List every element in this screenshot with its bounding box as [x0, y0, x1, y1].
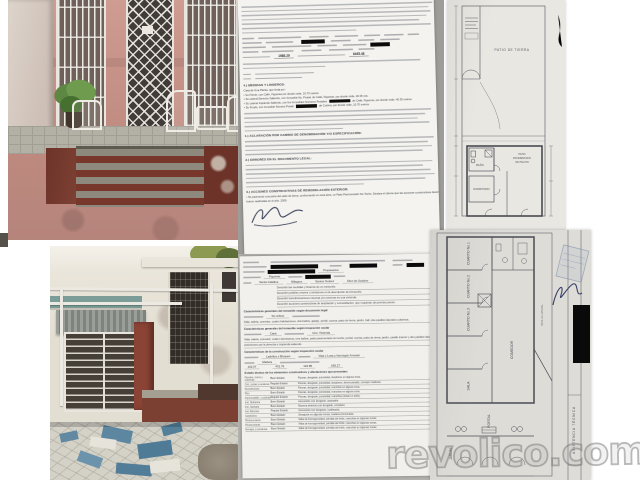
label-patio-pav-1: PATIO	[518, 153, 525, 156]
white-pipe-horizontal	[50, 302, 182, 305]
label-cuarto-1: CUARTO No.1	[467, 242, 471, 265]
label-bar	[288, 276, 302, 277]
label-cuarto-3: CUARTO No.3	[467, 308, 471, 331]
label-bar	[244, 357, 258, 358]
label-portal: PORTAL	[487, 414, 491, 428]
blurred-text-line	[245, 128, 344, 132]
blurred-field	[335, 35, 359, 37]
porch-chair-left	[72, 100, 102, 130]
estado-value: Buen Estado	[271, 427, 299, 430]
label-bar	[280, 361, 319, 363]
plan1-labels: PATIO DE TIERRA BAÑO PATIO PAVIMENTADO S…	[473, 48, 530, 191]
otros-value: Madera	[257, 361, 277, 365]
describe-line: Describir acciones constructivas de ampl…	[277, 300, 435, 308]
blurred-field	[343, 44, 367, 46]
porch-table	[196, 106, 228, 130]
blurred-field	[393, 260, 413, 262]
price-value-2: 6465.48	[349, 52, 369, 57]
label-dormitorio: DORMITORIO	[473, 188, 489, 191]
label-bar	[244, 362, 254, 363]
plan1-note-block	[465, 18, 478, 39]
label-bar	[244, 316, 264, 318]
label-patio-pav-2: PAVIMENTADO	[513, 157, 531, 160]
blurred-field	[242, 51, 258, 53]
price-value-1: 1988.29	[274, 54, 294, 59]
corrugated-roof	[56, 310, 146, 334]
estado-value: Buen Estado	[271, 400, 299, 403]
architect-signature	[553, 284, 582, 305]
blurred-field	[302, 50, 322, 52]
element-name: Inst. Hidráulica	[245, 401, 271, 404]
municipio-value: Diez de Octubre	[342, 280, 373, 284]
blurred-field	[330, 265, 342, 266]
doc1-content: 1988.29 6465.48 4.) MEDIDAS Y LINDEROS: …	[238, 0, 441, 231]
facade-door-panel	[142, 26, 153, 34]
afectacion-desc: Fisuras, desgaste, porosidad, desplome e…	[298, 375, 440, 380]
photo-edge-fragment	[0, 233, 8, 247]
estado-value: Buen Estado	[270, 391, 298, 394]
label-bar	[243, 271, 265, 273]
estado-value: Buen Estado	[271, 423, 299, 426]
sec5-tipo-value: No refiere	[266, 315, 289, 319]
redaction-box	[573, 305, 590, 363]
doc2-content: Propietarios Figueras Santa Catalina Mil…	[239, 254, 439, 436]
steps-treads	[76, 146, 204, 207]
blurred-field	[329, 49, 353, 51]
estado-value: Buen Estado	[270, 387, 298, 390]
between-a-value: Santa Catalina	[254, 281, 283, 285]
blurred-field	[243, 74, 251, 75]
blurred-text-line	[243, 66, 326, 69]
steps-side-wall-left	[46, 148, 76, 204]
blue-tile-patch	[116, 462, 153, 476]
estado-value: Regular Estado	[271, 396, 299, 399]
element-name: Revestimiento	[245, 387, 271, 390]
redaction-bar	[271, 264, 318, 269]
element-name: Pintura exterior	[245, 419, 271, 422]
element-name: Carpintería	[245, 414, 271, 417]
blurred-field	[272, 45, 311, 47]
house-walls	[467, 146, 542, 216]
area-value: 431.76	[272, 365, 287, 369]
redaction-bar	[268, 269, 315, 274]
blue-tile-patch	[59, 430, 78, 443]
porch-rocking-chair	[166, 90, 196, 132]
label-bar	[243, 282, 251, 283]
label-bar	[334, 276, 346, 277]
dimension-lines	[454, 6, 562, 216]
redaction-bar	[349, 263, 377, 267]
blue-tile-patch	[137, 440, 173, 460]
label-cuarto-2: CUARTO No.2	[467, 275, 471, 298]
doc1-paragraph	[244, 108, 440, 132]
label-bar	[244, 334, 262, 335]
estado-value: Regular Estado	[270, 382, 298, 385]
redaction-bar	[296, 104, 317, 108]
cubierta-value: Viga y Losa y Hormigón Armado	[313, 354, 365, 358]
label-pasillo-lateral: PASILLO LATERAL	[541, 303, 544, 325]
floorplan-1-drawing: PATIO DE TIERRA BAÑO PATIO PAVIMENTADO S…	[447, 0, 565, 230]
floorplan-sheet-1: PATIO DE TIERRA BAÑO PATIO PAVIMENTADO S…	[447, 0, 565, 230]
blurred-field	[309, 36, 329, 38]
label-bar	[243, 56, 271, 58]
element-name: Herrajes y cerraduras	[245, 428, 271, 431]
sec6-uso-value: Uso: Vivienda	[307, 332, 335, 336]
element-name: Inst. Sanitaria	[245, 405, 271, 408]
blurred-field	[242, 47, 266, 49]
reparto-value: Santos Suárez	[310, 280, 339, 284]
blurred-field	[384, 34, 404, 36]
facade-photo	[8, 0, 240, 240]
doc2-sec6-distribution: Sala, saleta, comedor, cuatro dormitorio…	[244, 335, 439, 349]
blurred-field	[242, 42, 262, 44]
ink-stamp	[556, 245, 589, 282]
label-patio-pav-3: SIN TECHO	[515, 161, 529, 164]
white-pipe-post	[60, 288, 63, 406]
revolico-watermark: revolico.com	[386, 429, 640, 478]
doc1-linderos-list: Casa de Una Planta, que linda por: • Su …	[243, 84, 440, 110]
patio-planter	[198, 384, 240, 400]
blurred-field	[364, 35, 380, 37]
element-name: Paredes, muros y columnas	[245, 376, 271, 381]
estado-value: Buen Estado	[270, 377, 298, 380]
white-tile-patch	[149, 458, 180, 473]
redaction-bar	[305, 274, 331, 278]
label-bar	[292, 315, 320, 317]
sidewalk	[8, 204, 240, 240]
element-name: Impermeabiliz. y cubierta	[245, 396, 271, 399]
patio-dirt-area	[198, 444, 240, 480]
doc1-paragraph	[245, 160, 440, 188]
patio-photo	[50, 246, 240, 480]
blurred-field	[331, 40, 351, 42]
sec6-tipo-value: Casa	[265, 332, 282, 336]
blurred-field	[242, 38, 254, 40]
patio-doorway-grille	[168, 272, 210, 364]
area-value: 636.27	[328, 364, 343, 368]
blurred-field	[359, 48, 375, 50]
label-bar	[285, 333, 305, 335]
blurred-field	[266, 41, 294, 43]
doc2-describe-lines: Describir las medidas y linderos de un i…	[243, 283, 439, 308]
doc1-paragraph	[245, 136, 441, 155]
element-name: Pintura interior	[245, 423, 271, 426]
redaction-bar	[407, 263, 425, 267]
blurred-text-line	[242, 29, 356, 33]
estado-value: Buen Estado	[271, 405, 299, 408]
signature	[246, 202, 322, 227]
owner-value: Propietarios	[318, 269, 344, 273]
patio-curb	[142, 398, 240, 424]
label-comedor: COMEDOR	[510, 340, 514, 359]
doc1-intro-paragraph	[241, 1, 439, 33]
blurred-field	[243, 266, 267, 268]
porch-steps	[46, 146, 240, 206]
legal-document-page: 1988.29 6465.48 4.) MEDIDAS Y LINDEROS: …	[238, 0, 441, 260]
patio-back-gate-grille	[64, 332, 142, 412]
label-bar	[243, 277, 261, 278]
blurred-field	[255, 77, 302, 79]
element-name: Piso	[245, 392, 271, 395]
area-value: 122.86	[300, 365, 315, 369]
label-patio-de-tierra: PATIO DE TIERRA	[495, 48, 530, 52]
street-value: Figueras	[264, 275, 285, 279]
blue-tile-patch	[77, 450, 103, 469]
blurred-field	[243, 262, 259, 263]
estado-value: Buen Estado	[271, 414, 299, 417]
patio-window	[222, 272, 236, 302]
label-bar	[298, 54, 345, 56]
muros-value: Ladrillos y Bloques	[261, 355, 295, 359]
label-sala: SALA	[467, 381, 471, 391]
blurred-field	[380, 39, 400, 41]
label-bano: BAÑO	[476, 162, 484, 167]
element-name: Inst. Eléctrica	[245, 410, 271, 413]
blurred-field	[262, 50, 294, 52]
lot-outline	[462, 6, 545, 216]
between-b-value: Milagros	[286, 280, 307, 284]
element-name: Cub., juntas y escaleras	[245, 383, 271, 386]
patio-cornice	[142, 258, 240, 267]
estado-value: Regular Estado	[271, 409, 299, 412]
afectacion-desc: Falta de homogeneidad, pérdida del brill…	[299, 425, 440, 430]
blurred-field	[358, 39, 374, 41]
doc2-estado-table: Paredes, muros y columnasBuen EstadoFisu…	[245, 373, 440, 432]
blurred-field	[243, 78, 251, 79]
estado-value: Buen Estado	[271, 418, 299, 421]
label-bar	[298, 356, 310, 357]
facade-white-column	[8, 0, 53, 132]
listing-collage: 1988.29 6465.48 4.) MEDIDAS Y LINDEROS: …	[0, 0, 640, 480]
blurred-field	[317, 45, 337, 47]
floor-shadow	[50, 422, 240, 427]
redaction-bar	[370, 42, 390, 47]
steps-side-wall-right	[204, 146, 240, 204]
redaction-bar	[301, 39, 325, 44]
blurred-field	[393, 264, 403, 265]
blurred-field	[408, 34, 420, 36]
area-value: 102.07	[244, 366, 259, 370]
